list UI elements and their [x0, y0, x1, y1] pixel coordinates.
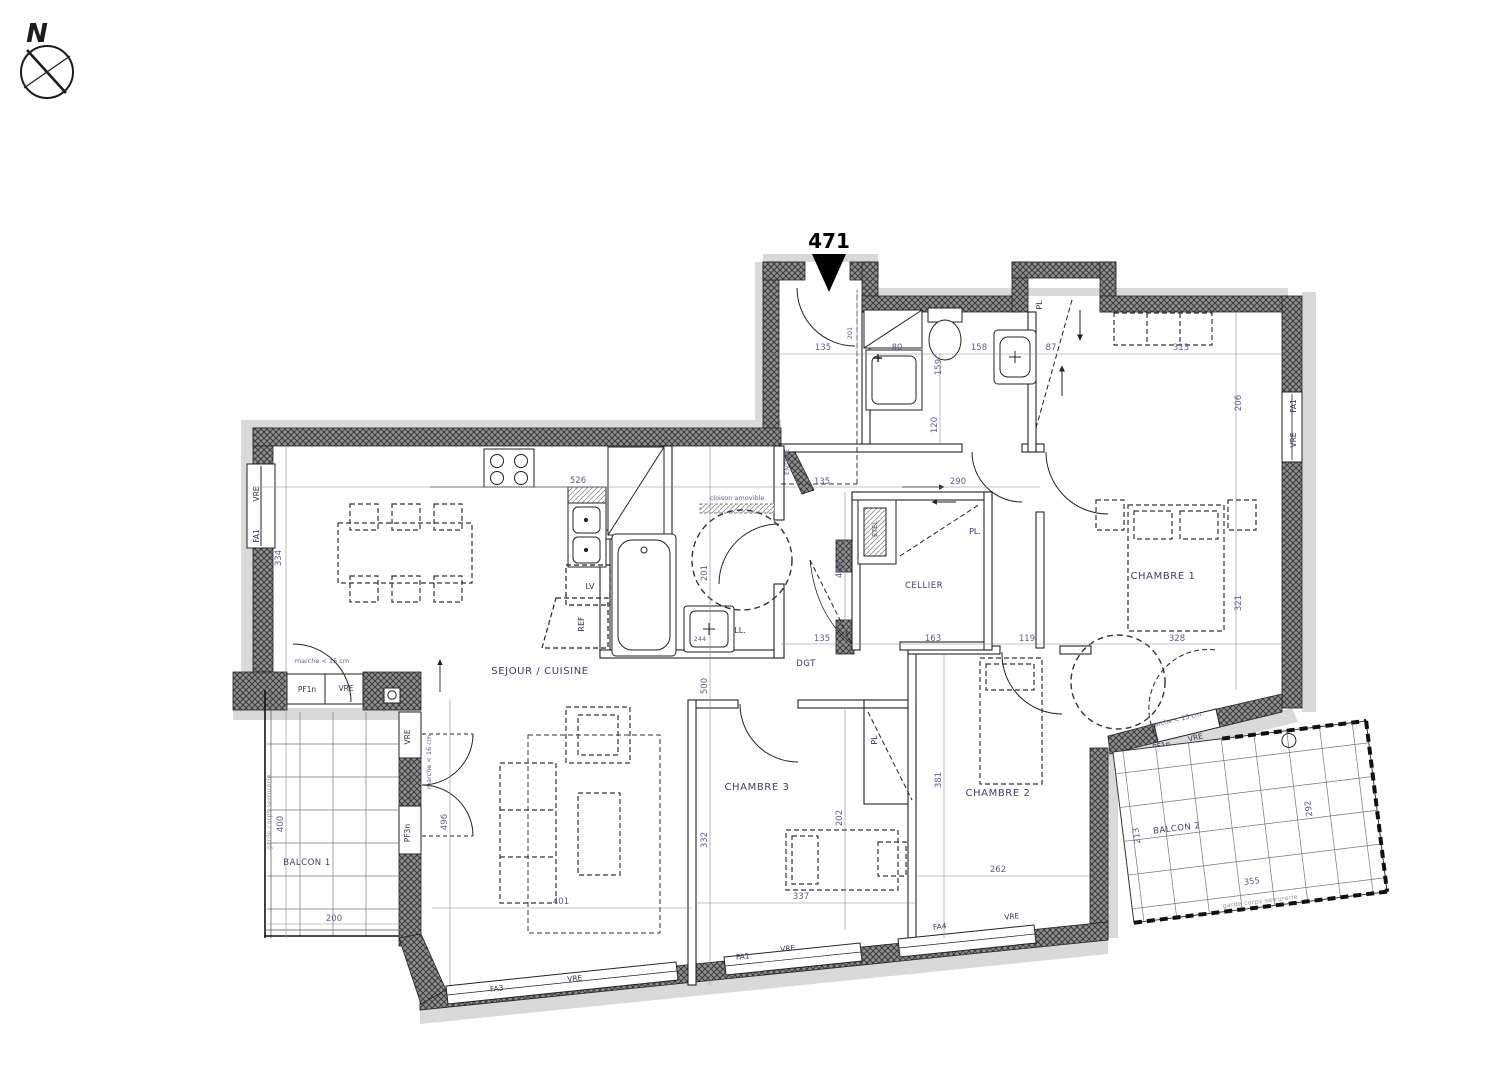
dim: 244 [694, 635, 706, 643]
compass-icon: N [21, 19, 73, 98]
dim: 400 [276, 816, 286, 832]
elec-panel-label: ETEL [871, 521, 879, 537]
removable-partition-note: cloison amovible [710, 494, 765, 502]
dim: 526 [570, 476, 586, 486]
window-left-sejour: VRE FA1 [247, 464, 275, 548]
room-label-chambre3: CHAMBRE 3 [724, 782, 789, 793]
dim: 206 [1234, 395, 1244, 411]
window-tag: FA1 [252, 529, 261, 543]
dim: 163 [925, 634, 941, 644]
door-tag: PF3n [403, 824, 412, 843]
dim-balcon2-width: 355 [1243, 876, 1260, 888]
dim: 135 [814, 477, 830, 487]
furniture [338, 290, 1256, 933]
window-tag: FA3 [490, 983, 505, 993]
dim: 381 [934, 772, 944, 788]
dim: 321 [1234, 595, 1244, 611]
washer-label: LL. [734, 626, 745, 635]
dim-balcon2-right: 292 [1303, 800, 1315, 817]
compass-north-label: N [26, 19, 48, 49]
door-tag: PF1n [298, 685, 317, 694]
dim: 290 [950, 477, 966, 487]
wc-fixtures [864, 300, 1080, 428]
dim: 135 [815, 343, 831, 353]
window-shutter-tag: VRE [1289, 432, 1298, 447]
dim: 135 [814, 634, 830, 644]
dim: 201 [700, 565, 710, 581]
balcony-2: BALCON 2 213 355 292 garde corps serrure… [1113, 721, 1387, 923]
window-tag: VRE [403, 729, 412, 744]
room-label-cellier: CELLIER [905, 581, 943, 591]
dim: 120 [930, 417, 940, 433]
window-shutter-tag: VRE [252, 486, 261, 501]
window-right-chambre1: FA1 VRE [1282, 392, 1302, 462]
window-shutter-tag: VRE [1004, 911, 1020, 922]
entry-label: ENTREE [783, 449, 791, 475]
room-label-chambre2: CHAMBRE 2 [965, 788, 1030, 799]
dim: 202 [835, 810, 845, 826]
dim: 328 [1169, 634, 1185, 644]
closet-label-ch3: PL [870, 735, 879, 745]
dim: 337 [793, 892, 809, 902]
dim: 464 [835, 562, 845, 578]
dim-balcon2-depth: 213 [1131, 827, 1143, 844]
door-balcon1: PF1n VRE [287, 674, 363, 704]
fridge-label: REF [577, 616, 586, 632]
window-tag: FA4 [933, 921, 948, 931]
closet-label-top: PL [1035, 300, 1044, 310]
entrance-arrow-icon [812, 254, 846, 292]
railing-note: garde corps serrurerie [266, 774, 273, 850]
floor-plan-svg: N [0, 0, 1486, 1080]
balcony-1: BALCON 1 garde corps serrurerie [265, 688, 400, 938]
dim: 500 [700, 678, 710, 694]
dim: 496 [440, 814, 450, 830]
dim: 119 [1019, 634, 1035, 644]
dim: 401 [553, 897, 569, 907]
floor-plan-page: N [0, 0, 1486, 1080]
dim: 313 [1173, 343, 1189, 353]
room-label-sejour-cuisine: SEJOUR / CUISINE [491, 666, 588, 677]
room-label-dgt: DGT [796, 659, 816, 669]
dim: 80 [892, 343, 903, 353]
window-shutter-tag: VRE [780, 943, 796, 954]
step-note-balcon1: marche < 15 cm [295, 657, 349, 665]
door-shutter-tag: VRE [338, 684, 353, 693]
dim: 201 [846, 327, 854, 339]
unit-number: 471 [808, 229, 850, 253]
dim: 200 [326, 914, 342, 924]
dim: 87 [1046, 343, 1057, 353]
dim: 158 [971, 343, 987, 353]
dishwasher-label: LV [585, 582, 595, 591]
dim: 159 [934, 359, 944, 375]
window-tag: FA1 [736, 951, 751, 961]
window-shutter-tag: VRE [567, 973, 583, 984]
step-note-balcon1-side: marche < 16 cm [425, 735, 433, 789]
closet-label-cellier: PL. [969, 527, 981, 536]
dim: 262 [990, 865, 1006, 875]
room-label-chambre1: CHAMBRE 1 [1130, 571, 1195, 582]
dim: 334 [274, 550, 284, 566]
dim: 332 [700, 832, 710, 848]
window-tag: FA1 [1289, 399, 1298, 413]
room-label-balcon1: BALCON 1 [283, 858, 330, 868]
